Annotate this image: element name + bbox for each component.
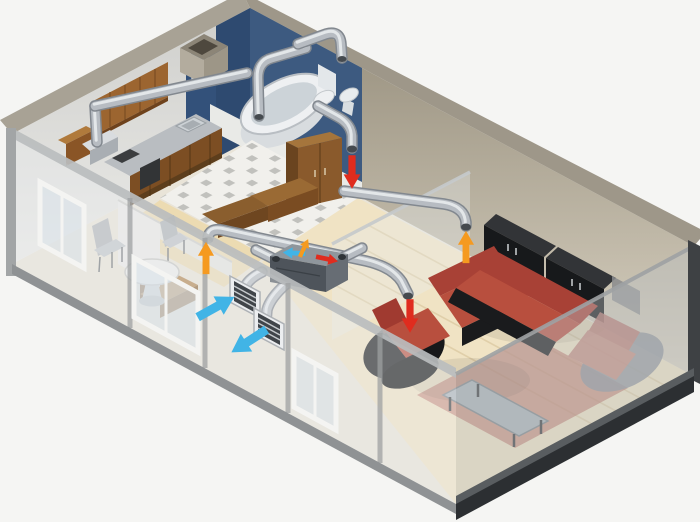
scene-canvas xyxy=(0,0,700,522)
wall-post xyxy=(286,283,291,413)
wall-post xyxy=(378,333,383,463)
corner-post xyxy=(6,128,16,276)
isometric-apartment-ventilation-illustration xyxy=(0,0,700,522)
corner-post xyxy=(688,240,700,384)
unit-duct-collar xyxy=(272,256,280,262)
unit-duct-collar xyxy=(338,254,346,260)
